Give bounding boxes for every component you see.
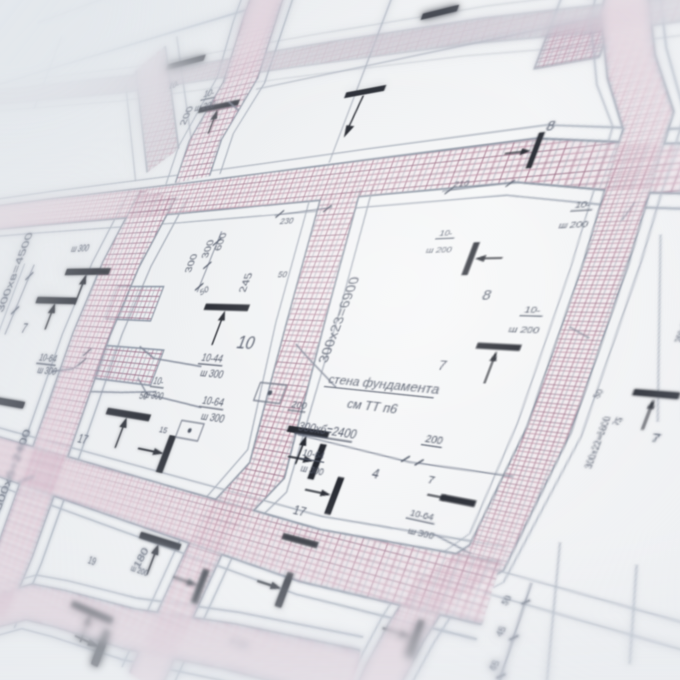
svg-text:8: 8: [479, 290, 495, 304]
svg-text:300х22=6600: 300х22=6600: [582, 415, 615, 469]
svg-text:50: 50: [590, 387, 607, 400]
svg-text:7: 7: [435, 360, 448, 375]
svg-text:7: 7: [649, 430, 665, 445]
svg-text:50: 50: [499, 593, 515, 607]
svg-text:10-: 10-: [522, 303, 545, 316]
svg-text:200: 200: [424, 432, 447, 447]
svg-text:200: 200: [179, 105, 196, 125]
svg-text:10-: 10-: [438, 226, 457, 238]
svg-text:45: 45: [493, 624, 509, 638]
svg-text:245: 245: [237, 272, 256, 293]
svg-text:300хв=4500: 300хв=4500: [0, 232, 36, 313]
svg-text:17: 17: [76, 430, 91, 447]
svg-text:стена фундамента: стена фундамента: [326, 374, 444, 398]
svg-text:см ТТ п6: см ТТ п6: [344, 399, 399, 418]
svg-text:65: 65: [487, 658, 503, 673]
svg-text:7: 7: [19, 321, 29, 336]
svg-text:300х27=4600: 300х27=4600: [670, 297, 680, 343]
svg-text:ш 300: ш 300: [199, 412, 226, 427]
svg-text:ш 300: ш 300: [299, 463, 327, 478]
svg-text:8: 8: [543, 120, 557, 135]
svg-text:ш 200: ш 200: [130, 563, 151, 579]
svg-text:10-: 10-: [573, 199, 594, 210]
svg-text:ш 300: ш 300: [69, 245, 90, 255]
svg-text:ш 200: ш 200: [424, 243, 456, 255]
svg-text:ш 300: ш 300: [198, 369, 225, 383]
svg-text:300: 300: [184, 253, 201, 273]
svg-text:ш 300: ш 300: [36, 365, 59, 378]
svg-text:ш 200: ш 200: [507, 322, 544, 336]
svg-text:17: 17: [290, 505, 307, 521]
svg-text:4: 4: [369, 468, 381, 483]
svg-text:10: 10: [233, 333, 258, 355]
svg-text:19: 19: [86, 556, 97, 569]
svg-text:15: 15: [157, 425, 169, 437]
svg-text:230: 230: [278, 216, 296, 228]
svg-text:ш 200: ш 200: [557, 220, 589, 231]
svg-text:ш 300: ш 300: [407, 526, 436, 542]
svg-text:50: 50: [200, 284, 210, 299]
svg-text:7: 7: [426, 473, 438, 486]
